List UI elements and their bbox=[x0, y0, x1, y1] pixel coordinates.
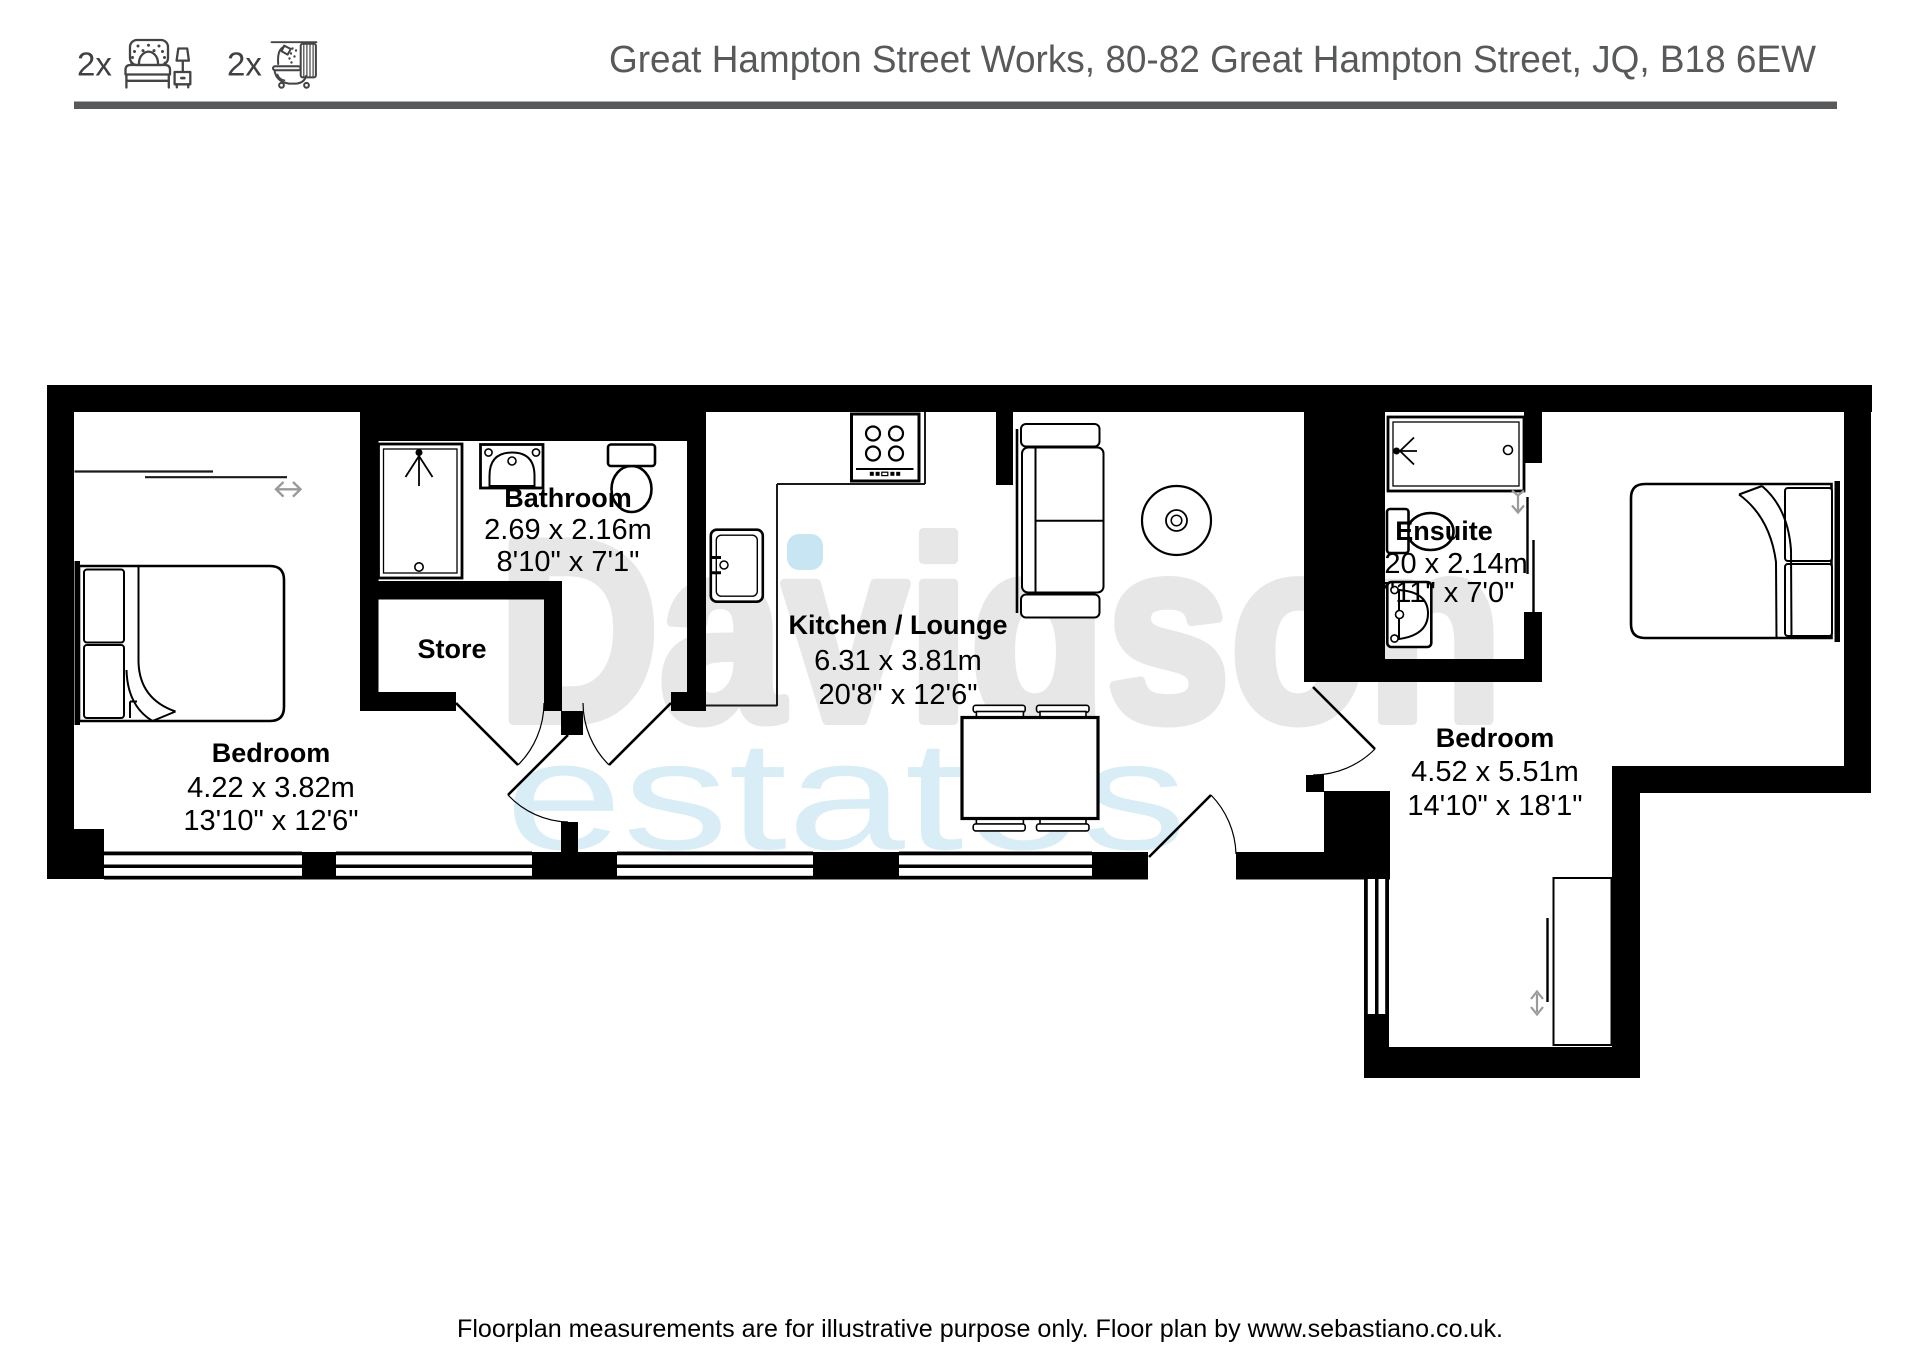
svg-text:20'8" x 12'6": 20'8" x 12'6" bbox=[818, 679, 977, 711]
svg-text:14'10" x 18'1": 14'10" x 18'1" bbox=[1407, 790, 1582, 822]
svg-text:Bedroom: Bedroom bbox=[212, 738, 331, 768]
svg-text:Store: Store bbox=[417, 634, 486, 664]
svg-text:2.69 x 2.16m: 2.69 x 2.16m bbox=[484, 514, 652, 546]
svg-text:2.20 x 2.14m: 2.20 x 2.14m bbox=[1360, 548, 1528, 580]
svg-text:4.22 x 3.82m: 4.22 x 3.82m bbox=[187, 772, 355, 804]
svg-text:Kitchen / Lounge: Kitchen / Lounge bbox=[789, 610, 1008, 640]
svg-text:Great Hampton Street Works, 80: Great Hampton Street Works, 80-82 Great … bbox=[609, 39, 1816, 81]
svg-text:Bathroom: Bathroom bbox=[504, 483, 632, 513]
svg-text:Ensuite: Ensuite bbox=[1395, 516, 1493, 546]
svg-text:13'10" x 12'6": 13'10" x 12'6" bbox=[183, 805, 358, 837]
svg-text:8'10" x 7'1": 8'10" x 7'1" bbox=[497, 546, 640, 578]
svg-text:2x: 2x bbox=[77, 46, 112, 83]
svg-text:7'11" x 7'0": 7'11" x 7'0" bbox=[1374, 577, 1515, 609]
svg-text:Bedroom: Bedroom bbox=[1436, 723, 1555, 753]
svg-text:Floorplan measurements are for: Floorplan measurements are for illustrat… bbox=[457, 1315, 1503, 1343]
svg-text:2x: 2x bbox=[227, 46, 262, 83]
svg-text:6.31 x 3.81m: 6.31 x 3.81m bbox=[814, 645, 982, 677]
svg-text:4.52 x 5.51m: 4.52 x 5.51m bbox=[1411, 756, 1579, 788]
